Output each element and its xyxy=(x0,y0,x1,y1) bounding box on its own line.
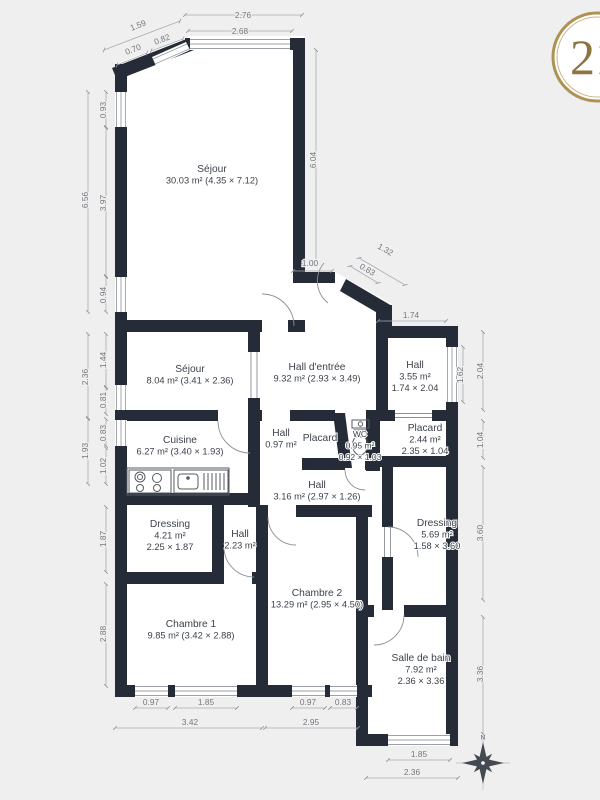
dim-left_cuisine_window: 0.83 xyxy=(98,425,108,442)
dim-hall_height: 2.04 xyxy=(475,363,485,380)
dim-c1_window_small: 0.97 xyxy=(143,697,160,707)
room-label-sejour_main-l2: 30.03 m² (4.35 × 7.12) xyxy=(166,176,258,186)
dim-sdb_width: 2.36 xyxy=(404,767,421,777)
room-label-dressing_left-l3: 2.25 × 1.87 xyxy=(147,542,194,552)
window xyxy=(115,277,127,312)
room-label-sejour_small-l2: 8.04 m² (3.41 × 2.36) xyxy=(146,376,233,386)
window xyxy=(330,685,357,697)
window xyxy=(115,420,127,446)
window xyxy=(115,92,127,127)
floorplan-drawing: 2.762.681.590.700.820.936.563.970.942.36… xyxy=(0,0,600,800)
room-label-wc: WC xyxy=(353,429,367,439)
room-label-dressing_left-l2: 4.21 m² xyxy=(154,531,186,541)
room-label-placard_right: Placard xyxy=(408,423,443,434)
dim-left_cuisine_total: 1.93 xyxy=(80,443,90,460)
room-label-sejour_small: Séjour xyxy=(175,364,205,375)
room-label-hall_right-l3: 1.74 × 2.04 xyxy=(392,383,439,393)
dim-c2_window: 0.97 xyxy=(300,697,317,707)
dim-left_cuisine_wall: 1.02 xyxy=(98,458,108,475)
room-label-dressing_right-l3: 1.58 × 3.60 xyxy=(414,541,461,551)
dim-c1_total: 3.42 xyxy=(182,717,199,727)
room-label-cuisine: Cuisine xyxy=(163,435,197,446)
dim-left_window_top: 0.93 xyxy=(98,102,108,119)
room-label-cuisine-l2: 6.27 m² (3.40 × 1.93) xyxy=(136,447,223,457)
room-label-dressing_left: Dressing xyxy=(150,519,191,530)
room-label-hall_entree-l2: 9.32 m² (2.93 × 3.49) xyxy=(273,374,360,384)
dim-sejour_height: 6.04 xyxy=(308,152,318,169)
dim-left_sejour_window: 0.81 xyxy=(98,392,108,409)
room-label-hall_entree: Hall d'entrée xyxy=(289,362,346,373)
dim-hall_width: 1.74 xyxy=(403,310,420,320)
floorplan-page: 2.762.681.590.700.820.936.563.970.942.36… xyxy=(0,0,600,800)
dim-c2_total: 2.95 xyxy=(303,717,320,727)
dim-left_chambre1: 2.88 xyxy=(98,626,108,643)
dim-hall_window: 1.62 xyxy=(455,367,465,384)
dim-placard_height: 1.04 xyxy=(475,432,485,449)
room-label-hall_small-l2: 0.97 m² xyxy=(265,440,297,450)
room-label-hall_small: Hall xyxy=(272,428,290,439)
room-label-wc-l2: 0.95 m² xyxy=(346,441,375,451)
room-label-hall_right: Hall xyxy=(406,360,424,371)
dim-top_window: 2.68 xyxy=(232,26,249,36)
compass-north-label: N xyxy=(481,735,486,742)
room-label-hall_inner-l2: 2.23 m² xyxy=(224,541,256,551)
dim-sdb_height: 3.36 xyxy=(475,666,485,683)
window xyxy=(175,685,237,697)
room-label-hall_central-l2: 3.16 m² (2.97 × 1.26) xyxy=(273,492,360,502)
dim-c1_window_large: 1.85 xyxy=(198,697,215,707)
room-label-chambre1: Chambre 1 xyxy=(166,619,217,630)
room-label-dressing_right: Dressing xyxy=(417,518,458,529)
dim-c2_window2: 0.83 xyxy=(335,697,352,707)
room-label-placard_right-l3: 2.35 × 1.04 xyxy=(402,446,449,456)
dim-left_total_upper: 6.56 xyxy=(80,192,90,209)
room-label-wc-l3: 0.92 × 1.03 xyxy=(339,452,382,462)
dim-top_total: 2.76 xyxy=(235,10,252,20)
room-label-sdb-l3: 2.36 × 3.36 xyxy=(398,676,445,686)
dim-dressing_height: 3.60 xyxy=(475,525,485,542)
logo-number: 21 xyxy=(570,29,600,85)
dim-sdb_window: 1.85 xyxy=(411,749,428,759)
dim-entree_top: 1.00 xyxy=(302,258,319,268)
room-label-dressing_right-l2: 5.69 m² xyxy=(421,530,453,540)
room-label-placard_small: Placard xyxy=(303,433,338,444)
dim-left_sejour_total: 2.36 xyxy=(80,369,90,386)
room-label-placard_right-l2: 2.44 m² xyxy=(409,435,441,445)
room-label-chambre2: Chambre 2 xyxy=(292,588,343,599)
dim-left_window_lower: 0.94 xyxy=(98,287,108,304)
window xyxy=(115,385,127,410)
room-label-chambre1-l2: 9.85 m² (3.42 × 2.88) xyxy=(147,631,234,641)
dim-left_wall_mid: 3.97 xyxy=(98,195,108,212)
window xyxy=(135,685,168,697)
room-label-hall_central: Hall xyxy=(308,480,326,491)
window xyxy=(388,734,450,746)
dim-left_dressing: 1.87 xyxy=(98,531,108,548)
room-label-chambre2-l2: 13.29 m² (2.95 × 4.50) xyxy=(271,600,363,610)
room-label-sejour_main: Séjour xyxy=(197,164,227,175)
room-label-hall_right-l2: 3.55 m² xyxy=(399,372,431,382)
room-label-sdb-l2: 7.92 m² xyxy=(405,665,437,675)
dim-left_sejour_wall: 1.44 xyxy=(98,352,108,369)
room-label-sdb: Salle de bain xyxy=(392,653,451,664)
window xyxy=(190,38,290,50)
window xyxy=(292,685,325,697)
room-label-hall_inner: Hall xyxy=(231,529,249,540)
